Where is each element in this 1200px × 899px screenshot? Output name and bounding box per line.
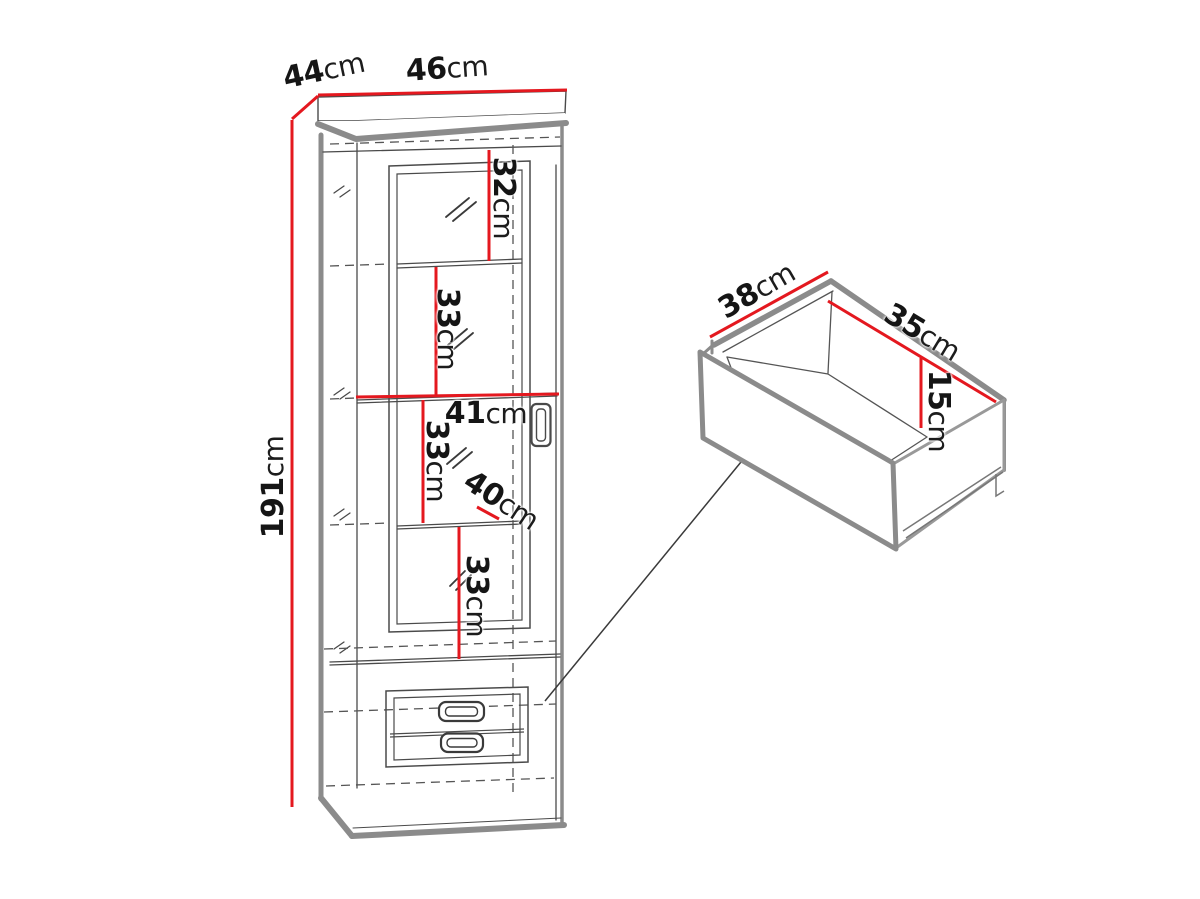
dim-label-46: 46cm [405,51,489,87]
door-handle [532,404,551,446]
dim-label-191: 191cm [259,436,289,539]
dim-line-44 [292,96,318,119]
dim-label-33c: 33cm [461,555,491,637]
dim-label-33a: 33cm [432,288,462,370]
callout-line [545,462,741,701]
dim-label-33b: 33cm [421,420,451,502]
dimension-diagram: 44cm 46cm 191cm 32cm 33cm 41cm 33cm 40cm… [0,0,1200,899]
drawer-front-panel [700,352,896,549]
drawer-handle-lower [441,734,483,753]
drawer-handle-upper [439,702,484,721]
dim-label-15: 15cm [923,370,953,452]
cabinet-drawer-fronts [386,687,528,767]
dim-label-41: 41cm [445,399,527,429]
line-drawing [0,0,1200,899]
dim-label-32: 32cm [488,157,518,239]
